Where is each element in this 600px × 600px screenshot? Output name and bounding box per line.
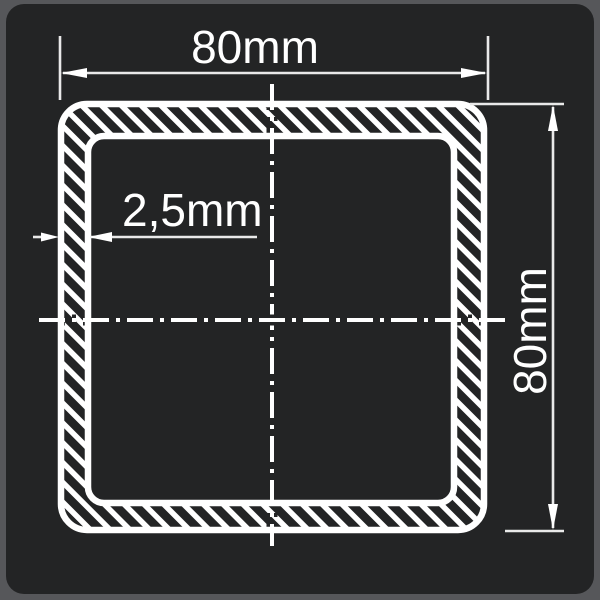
width-dimension-label: 80mm bbox=[191, 21, 319, 73]
thickness-dimension-label: 2,5mm bbox=[122, 184, 263, 236]
cross-section-diagram: 80mm 80mm 2,5mm bbox=[0, 0, 600, 600]
drawing-canvas: 80mm 80mm 2,5mm bbox=[0, 0, 600, 600]
height-dimension-label: 80mm bbox=[504, 267, 556, 395]
